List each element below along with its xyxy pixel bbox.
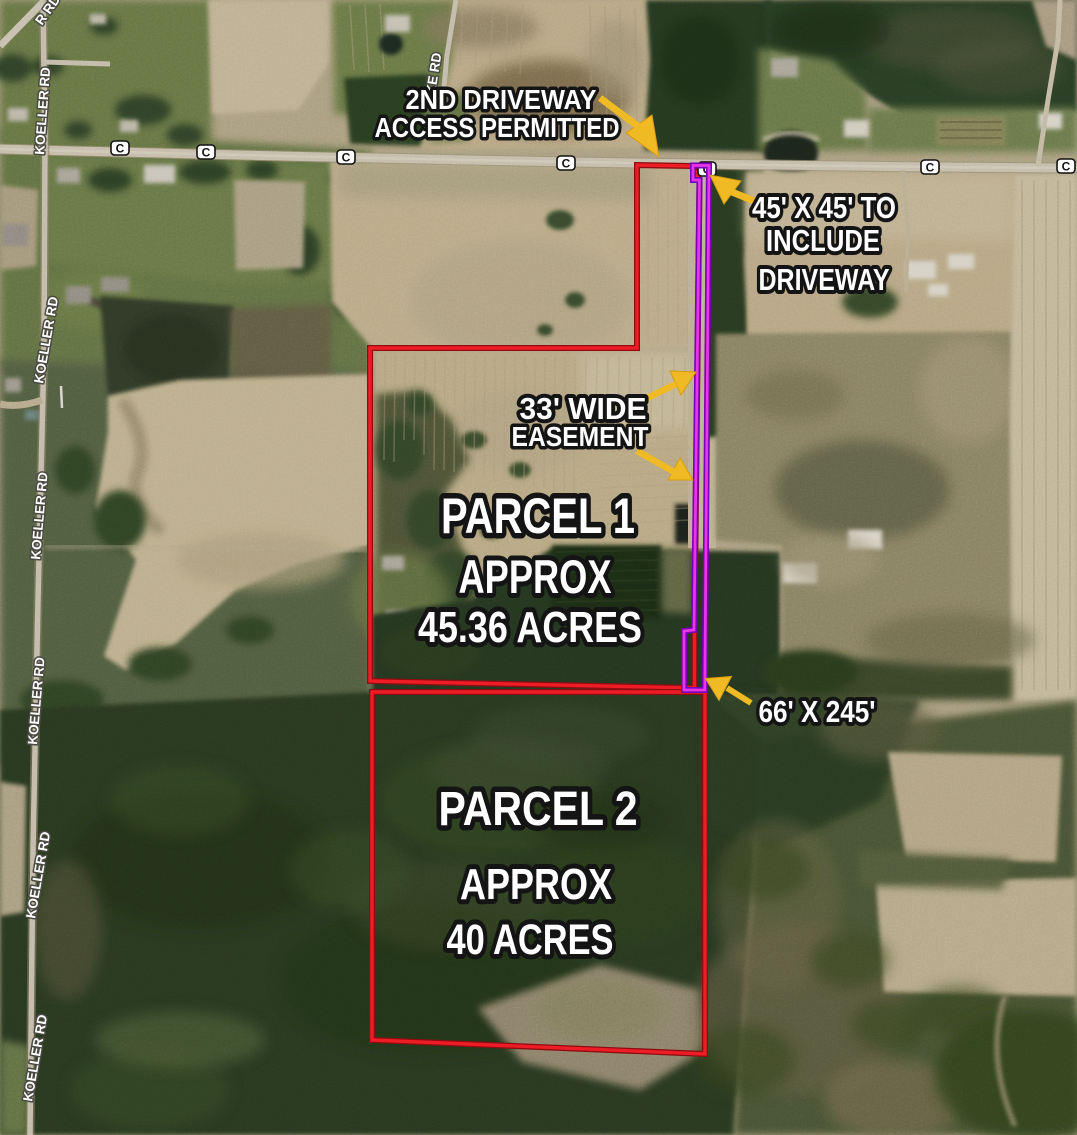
svg-text:66' X 245': 66' X 245' xyxy=(759,694,876,729)
svg-text:45.36 ACRES: 45.36 ACRES xyxy=(418,603,642,652)
svg-text:PARCEL 1: PARCEL 1 xyxy=(441,488,635,544)
svg-text:45' X 45' TO: 45' X 45' TO xyxy=(752,190,896,225)
svg-text:PARCEL 2: PARCEL 2 xyxy=(439,783,638,836)
svg-text:40 ACRES: 40 ACRES xyxy=(447,916,614,964)
svg-text:C: C xyxy=(202,146,211,160)
svg-text:C: C xyxy=(342,151,351,165)
svg-text:C: C xyxy=(926,161,935,175)
svg-text:DRIVEWAY: DRIVEWAY xyxy=(759,262,890,297)
svg-text:C: C xyxy=(1062,160,1071,174)
svg-text:INCLUDE: INCLUDE xyxy=(766,223,880,258)
svg-text:C: C xyxy=(562,157,571,171)
svg-text:APPROX: APPROX xyxy=(460,860,612,909)
svg-text:2ND DRIVEWAY: 2ND DRIVEWAY xyxy=(406,84,597,115)
svg-text:C: C xyxy=(116,142,125,156)
svg-text:ACCESS PERMITTED: ACCESS PERMITTED xyxy=(375,112,620,143)
svg-text:APPROX: APPROX xyxy=(459,550,612,603)
svg-text:EASEMENT: EASEMENT xyxy=(512,421,649,452)
